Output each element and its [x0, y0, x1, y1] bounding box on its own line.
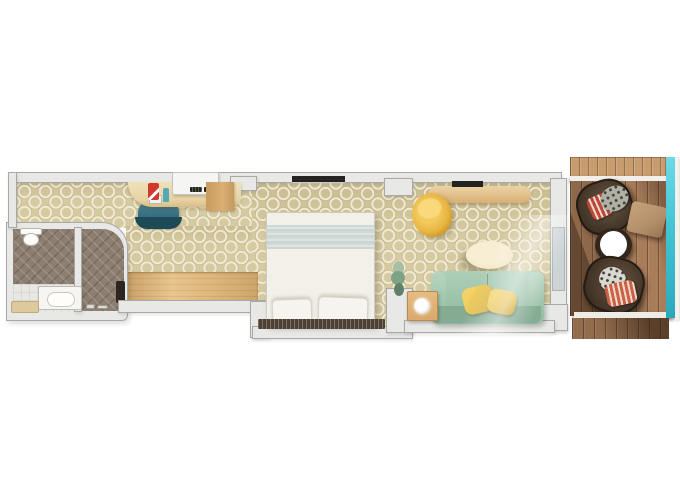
floor-plan-canvas [0, 0, 680, 486]
toilet [20, 228, 42, 246]
bottle [163, 188, 169, 202]
balcony-door [552, 227, 565, 291]
desk-chair-backrest [135, 217, 182, 229]
shower-fitting [97, 305, 108, 309]
carpet-corridor [126, 226, 252, 273]
coffee-table [466, 241, 513, 269]
neighbor-deck-strip [570, 157, 666, 178]
console-vent [190, 187, 202, 192]
tall-cabinet [206, 182, 234, 211]
plant-leaf [394, 283, 404, 296]
wall-bottom-entry [118, 300, 265, 313]
funnel-ornament-body [148, 183, 159, 200]
faucet [64, 297, 67, 300]
faucet [55, 297, 58, 300]
table-lamp [414, 298, 430, 314]
side-table [407, 291, 438, 321]
wall-pillar-living [384, 178, 413, 196]
wall-art [292, 176, 345, 182]
balcony-table [600, 231, 627, 258]
funnel-ornament [147, 183, 164, 205]
saucer-chair-cushion [416, 196, 444, 221]
wood-floor-strip [126, 272, 258, 303]
bed-runner [267, 225, 374, 249]
toilet-bowl [23, 233, 39, 246]
glass-railing [666, 157, 675, 318]
railing-edge [675, 157, 679, 320]
wall-left [8, 172, 17, 228]
deck-shadow [572, 318, 669, 339]
vanity-sink [38, 286, 82, 310]
shower-fitting [86, 304, 95, 309]
plant [391, 261, 406, 298]
bath-mat [11, 301, 39, 313]
wall-tv [452, 181, 483, 187]
headboard [258, 319, 385, 329]
